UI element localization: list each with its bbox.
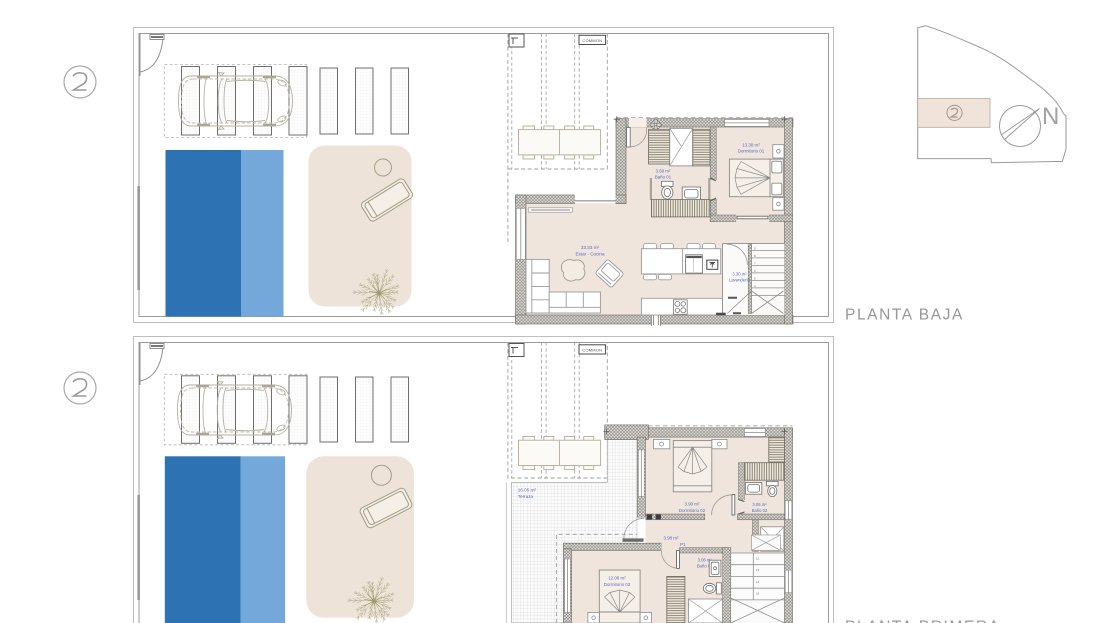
svg-text:12: 12 <box>756 557 760 561</box>
svg-text:13.38 m²: 13.38 m² <box>742 143 760 148</box>
svg-text:Baño 02: Baño 02 <box>752 508 768 513</box>
svg-text:Estar - Cocina: Estar - Cocina <box>575 252 605 257</box>
svg-text:16.05 m²: 16.05 m² <box>518 488 537 493</box>
svg-text:3.98 m²: 3.98 m² <box>664 536 679 541</box>
svg-text:3.69 m²: 3.69 m² <box>656 169 671 174</box>
svg-text:33.33 m²: 33.33 m² <box>581 245 600 250</box>
svg-text:Dormitorio 01: Dormitorio 01 <box>738 149 765 154</box>
svg-text:PLANTA PRIMERA: PLANTA PRIMERA <box>845 619 1001 623</box>
svg-text:3.30 m²: 3.30 m² <box>732 272 747 277</box>
svg-text:Terraza: Terraza <box>518 494 534 499</box>
svg-text:13: 13 <box>756 568 760 572</box>
svg-text:COMMON: COMMON <box>582 38 602 43</box>
svg-text:Dormitorio 02: Dormitorio 02 <box>679 508 706 513</box>
svg-text:Dormitorio 03: Dormitorio 03 <box>604 582 631 587</box>
svg-text:COMMON: COMMON <box>582 347 602 352</box>
svg-text:3.06 m²: 3.06 m² <box>752 502 767 507</box>
svg-text:PLANTA BAJA: PLANTA BAJA <box>845 307 964 324</box>
svg-text:15: 15 <box>756 592 760 596</box>
svg-text:3.90 m²: 3.90 m² <box>685 502 700 507</box>
svg-text:Baño 01: Baño 01 <box>655 175 672 180</box>
svg-text:12.08 m²: 12.08 m² <box>608 576 626 581</box>
svg-text:N: N <box>1042 103 1059 130</box>
svg-text:14: 14 <box>756 580 760 584</box>
svg-text:Lavandería: Lavandería <box>729 278 751 283</box>
